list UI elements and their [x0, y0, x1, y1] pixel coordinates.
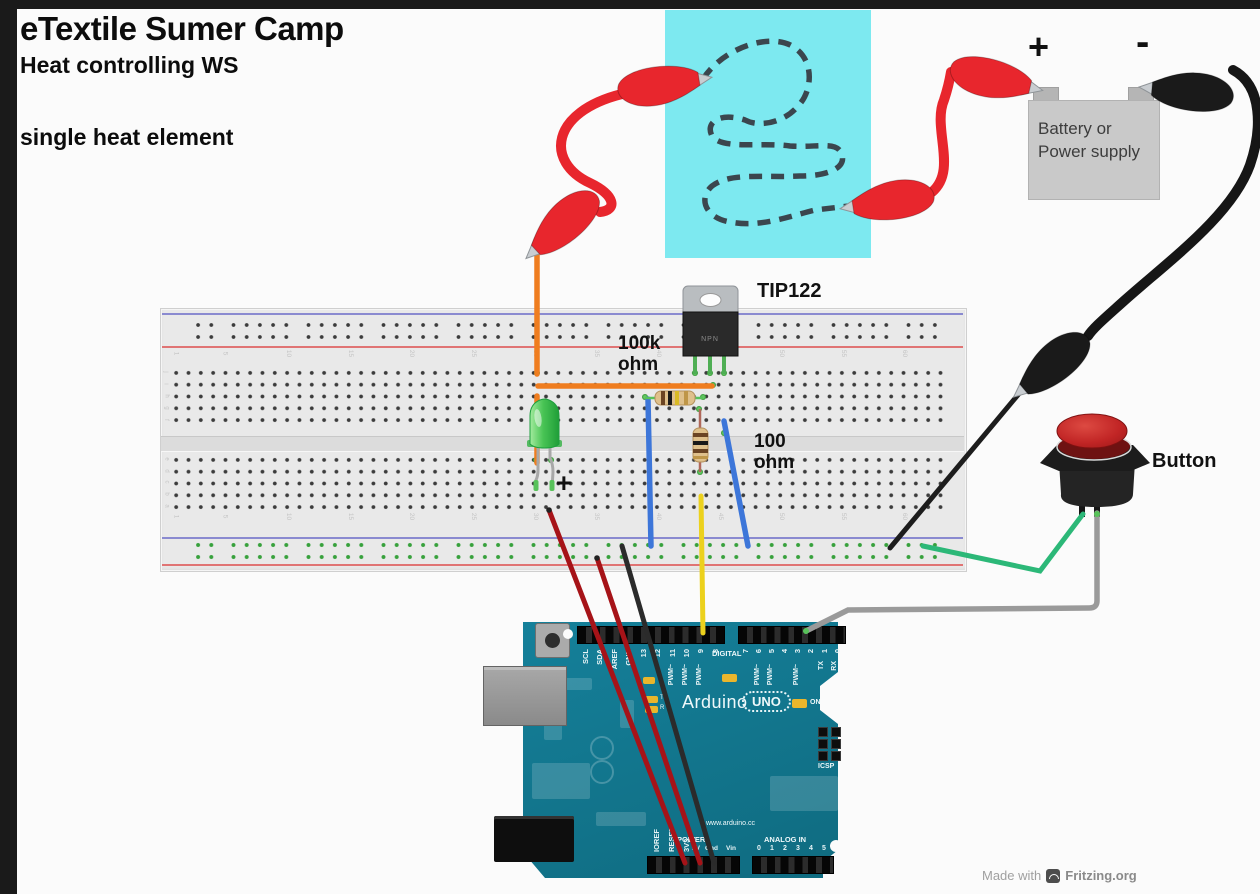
pin-label: 5: [767, 649, 776, 653]
column-number: 60: [901, 513, 908, 520]
pin-label: 5: [822, 845, 826, 852]
battery-label: Battery or Power supply: [1038, 118, 1140, 164]
arduino-logo: Arduino: [682, 692, 748, 713]
icsp-pin: [831, 727, 841, 737]
power-header: [647, 856, 740, 874]
wire-tip: [1094, 511, 1100, 517]
pin-label: GND: [624, 649, 633, 666]
page-title: eTextile Sumer Camp: [20, 10, 344, 48]
mounting-hole: [830, 699, 842, 711]
column-number: 20: [408, 350, 415, 357]
digital-header-right: [738, 626, 846, 644]
battery-minus-label: -: [1136, 20, 1149, 65]
pin-label: 1: [820, 649, 829, 653]
connected-hole: [642, 394, 648, 400]
uno-logo: UNO: [742, 691, 791, 712]
tx-led: [645, 696, 658, 703]
row-letter: g: [164, 406, 170, 409]
power-jack: [494, 816, 574, 862]
pin-label: RESET: [667, 827, 676, 852]
pin-label: 12: [653, 649, 662, 657]
pin-label: 10: [682, 649, 691, 657]
pin-label: 3V3: [682, 839, 691, 852]
pwm-label: PWM~: [754, 664, 761, 685]
row-letter: a: [164, 504, 170, 507]
pwm-label: PWM~: [793, 664, 800, 685]
analog-header: [752, 856, 834, 874]
breadboard-top-red-line: [162, 346, 963, 348]
icsp-pin: [818, 727, 828, 737]
column-number: 1: [172, 352, 179, 356]
column-number: 35: [593, 350, 600, 357]
connected-hole: [721, 370, 727, 376]
breadboard-grid-top: [170, 367, 947, 426]
pin-label: 0: [757, 845, 761, 852]
rx-led-label: R: [660, 705, 664, 711]
pin-label: SCL: [581, 649, 590, 664]
fritzing-diagram: eTextile Sumer Camp Heat controlling WS …: [0, 0, 1260, 894]
column-number: 35: [593, 513, 600, 520]
row-letter: c: [164, 481, 170, 484]
pin-label: Gnd: [705, 845, 718, 852]
column-number: 20: [408, 513, 415, 520]
row-letter: h: [164, 394, 170, 397]
pin-label: 7: [741, 649, 750, 653]
connected-hole: [721, 430, 727, 436]
reset-button: [535, 623, 570, 658]
rx-led: [645, 706, 658, 713]
pin-label: 8: [711, 649, 720, 653]
pwm-label: PWM~: [696, 664, 703, 685]
column-number: 60: [901, 350, 908, 357]
pin-label: Vin: [726, 845, 736, 852]
column-number: 10: [285, 350, 292, 357]
footer-credit: Made with Fritzing.org: [982, 868, 1137, 883]
made-with-text: Made with: [982, 868, 1041, 883]
column-number: 55: [840, 350, 847, 357]
pwm-label: PWM~: [668, 664, 675, 685]
row-letter: b: [164, 492, 170, 495]
connected-hole: [692, 370, 698, 376]
pwm-label: PWM~: [682, 664, 689, 685]
alligator-clip-black-inline: [1001, 321, 1098, 411]
fabric-swatch: [665, 10, 871, 258]
connected-hole: [533, 457, 539, 463]
screenshot-frame-left: [0, 0, 17, 894]
tip122-label: TIP122: [757, 280, 821, 302]
connected-hole: [534, 370, 540, 376]
pin-label: 11: [668, 649, 677, 657]
button-label: Button: [1152, 450, 1216, 472]
red-clip-wire-right: [932, 72, 951, 192]
push-button: [1040, 414, 1150, 517]
serial-label: RX: [831, 661, 838, 671]
pin-label: 0: [833, 649, 842, 653]
column-number: 30: [532, 513, 539, 520]
on-led: [792, 699, 807, 708]
icsp-label: ICSP: [818, 763, 834, 770]
on-label: ON: [810, 699, 821, 706]
mounting-hole: [830, 840, 842, 852]
breadboard-bottom-red-line: [162, 564, 963, 566]
column-number: 5: [221, 352, 228, 356]
analog-in-label: ANALOG IN: [764, 835, 806, 844]
column-number: 45: [717, 350, 724, 357]
page-subtitle: Heat controlling WS: [20, 52, 239, 79]
red-clip-wire-left: [561, 94, 622, 212]
row-letter: j: [163, 371, 169, 372]
column-number: 5: [221, 515, 228, 519]
arduino-url: www.arduino.cc: [706, 820, 755, 827]
column-number: 15: [347, 350, 354, 357]
connected-hole: [700, 394, 706, 400]
row-letter: e: [164, 457, 170, 460]
pin-label: SDA: [595, 649, 604, 665]
pin-label: 3: [793, 649, 802, 653]
serial-label: TX: [818, 661, 825, 670]
connected-hole: [710, 382, 716, 388]
column-number: 30: [532, 350, 539, 357]
column-number: 25: [470, 513, 477, 520]
pin-label: 4: [780, 649, 789, 653]
resistor-100k-label: 100k ohm: [618, 333, 660, 376]
row-letter: f: [163, 419, 169, 421]
icsp-pin: [831, 751, 841, 761]
icsp-pin: [818, 751, 828, 761]
led-polarity-label: +: [556, 468, 572, 498]
pin-label: 5V: [692, 845, 700, 852]
tx-led-label: T: [660, 695, 664, 701]
row-letter: d: [164, 469, 170, 472]
connected-hole: [707, 370, 713, 376]
column-number: 40: [655, 513, 662, 520]
breadboard-top-blue-line: [162, 313, 963, 315]
column-number: 50: [778, 513, 785, 520]
variant-label: single heat element: [20, 124, 233, 151]
pin-label: AREF: [610, 649, 619, 669]
fritzing-icon: [1046, 869, 1060, 883]
battery-plus-label: +: [1028, 26, 1049, 68]
pin-label: 2: [806, 649, 815, 653]
row-letter: i: [163, 383, 169, 384]
icsp-pin: [818, 739, 828, 749]
alligator-clip-red-to-breadboard: [513, 180, 609, 273]
column-number: 50: [778, 350, 785, 357]
fritzing-brand: Fritzing.org: [1065, 868, 1137, 883]
column-number: 10: [285, 513, 292, 520]
pwm-label: PWM~: [767, 664, 774, 685]
mounting-hole: [563, 629, 573, 639]
l-led: [643, 677, 655, 684]
pin-label: 4: [809, 845, 813, 852]
icsp-pin: [831, 739, 841, 749]
column-number: 1: [172, 515, 179, 519]
pin-label: 9: [696, 649, 705, 653]
pin-label: IOREF: [652, 829, 661, 852]
connected-hole: [548, 457, 554, 463]
column-number: 15: [347, 513, 354, 520]
usb-port: [483, 666, 567, 726]
pin-label: 3: [796, 845, 800, 852]
column-number: 55: [840, 513, 847, 520]
pin13-led: [722, 674, 737, 682]
pin-label: 1: [770, 845, 774, 852]
breadboard-top-rail-holes: [196, 319, 946, 343]
pin-label: 2: [783, 845, 787, 852]
resistor-100-label: 100 ohm: [754, 431, 794, 474]
column-number: 25: [470, 350, 477, 357]
connected-hole: [696, 406, 702, 412]
connected-hole: [697, 469, 703, 475]
breadboard-center-channel: [161, 436, 964, 452]
column-number: 45: [717, 513, 724, 520]
pin-label: 6: [754, 649, 763, 653]
screenshot-frame-top: [0, 0, 1260, 9]
digital-header-left: [577, 626, 725, 644]
pin-label: 13: [639, 649, 648, 657]
breadboard-bottom-rail-holes: [196, 539, 946, 563]
